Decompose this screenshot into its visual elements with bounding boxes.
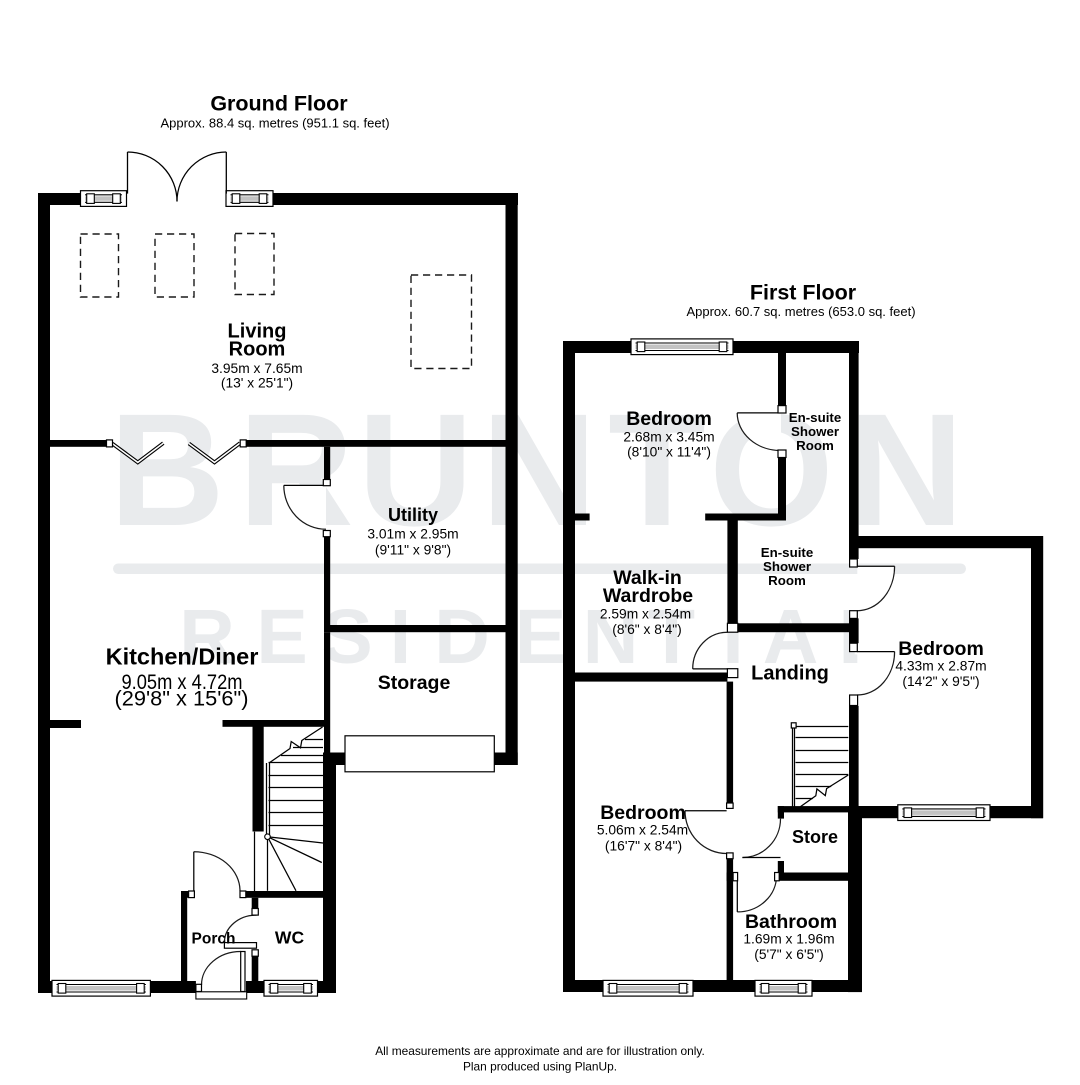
svg-text:Room: Room <box>229 339 286 361</box>
svg-text:Kitchen/Diner: Kitchen/Diner <box>106 644 259 670</box>
svg-text:Utility: Utility <box>388 505 438 525</box>
svg-text:Room: Room <box>768 573 806 588</box>
svg-text:Wardrobe: Wardrobe <box>603 585 693 607</box>
svg-text:Store: Store <box>792 827 838 847</box>
svg-text:Bedroom: Bedroom <box>898 638 984 660</box>
svg-text:WC: WC <box>275 927 305 947</box>
svg-text:2.59m x 2.54m: 2.59m x 2.54m <box>600 607 691 622</box>
svg-text:Storage: Storage <box>378 672 451 694</box>
svg-text:Room: Room <box>796 438 834 453</box>
svg-text:Shower: Shower <box>763 559 811 574</box>
svg-text:Bedroom: Bedroom <box>600 802 686 824</box>
svg-text:R: R <box>238 380 354 559</box>
svg-text:Landing: Landing <box>751 663 829 685</box>
svg-text:En-suite: En-suite <box>761 545 813 560</box>
svg-text:All measurements are approxima: All measurements are approximate and are… <box>375 1044 705 1058</box>
svg-text:Approx. 60.7 sq. metres (653.0: Approx. 60.7 sq. metres (653.0 sq. feet) <box>686 304 915 319</box>
svg-text:4.33m x 2.87m: 4.33m x 2.87m <box>895 659 986 674</box>
svg-text:(8'10" x 11'4"): (8'10" x 11'4") <box>627 445 711 460</box>
svg-text:D: D <box>434 594 490 680</box>
svg-text:5.06m x 2.54m: 5.06m x 2.54m <box>597 823 688 838</box>
svg-text:(29'8" x 15'6"): (29'8" x 15'6") <box>115 688 249 711</box>
svg-text:E: E <box>256 594 307 680</box>
svg-text:I: I <box>390 594 411 680</box>
svg-text:Porch: Porch <box>192 931 236 948</box>
svg-text:En-suite: En-suite <box>789 410 841 425</box>
svg-text:(9'11" x 9'8"): (9'11" x 9'8") <box>375 543 451 558</box>
svg-text:B: B <box>109 380 225 559</box>
svg-text:1.69m x 1.96m: 1.69m x 1.96m <box>743 932 834 947</box>
svg-text:(14'2" x 9'5"): (14'2" x 9'5") <box>902 674 979 689</box>
svg-text:2.68m x 3.45m: 2.68m x 3.45m <box>623 430 714 445</box>
svg-text:(13' x 25'1"): (13' x 25'1") <box>221 376 293 391</box>
svg-text:Ground Floor: Ground Floor <box>210 92 348 116</box>
svg-text:E: E <box>515 594 566 680</box>
svg-text:3.95m x 7.65m: 3.95m x 7.65m <box>211 361 302 376</box>
svg-text:T: T <box>608 380 706 559</box>
svg-text:(8'6" x 8'4"): (8'6" x 8'4") <box>612 622 682 637</box>
svg-text:Approx. 88.4 sq. metres (951.1: Approx. 88.4 sq. metres (951.1 sq. feet) <box>160 115 389 130</box>
svg-text:N: N <box>848 380 964 559</box>
svg-text:3.01m x 2.95m: 3.01m x 2.95m <box>367 527 458 542</box>
svg-text:Bathroom: Bathroom <box>745 911 837 933</box>
svg-text:(16'7" x 8'4"): (16'7" x 8'4") <box>605 839 682 854</box>
svg-text:First Floor: First Floor <box>750 281 857 305</box>
svg-text:Bedroom: Bedroom <box>626 408 712 430</box>
svg-text:N: N <box>481 380 597 559</box>
svg-text:(5'7" x 6'5"): (5'7" x 6'5") <box>754 947 824 962</box>
svg-text:Shower: Shower <box>791 424 839 439</box>
svg-text:Plan produced using PlanUp.: Plan produced using PlanUp. <box>463 1060 617 1074</box>
